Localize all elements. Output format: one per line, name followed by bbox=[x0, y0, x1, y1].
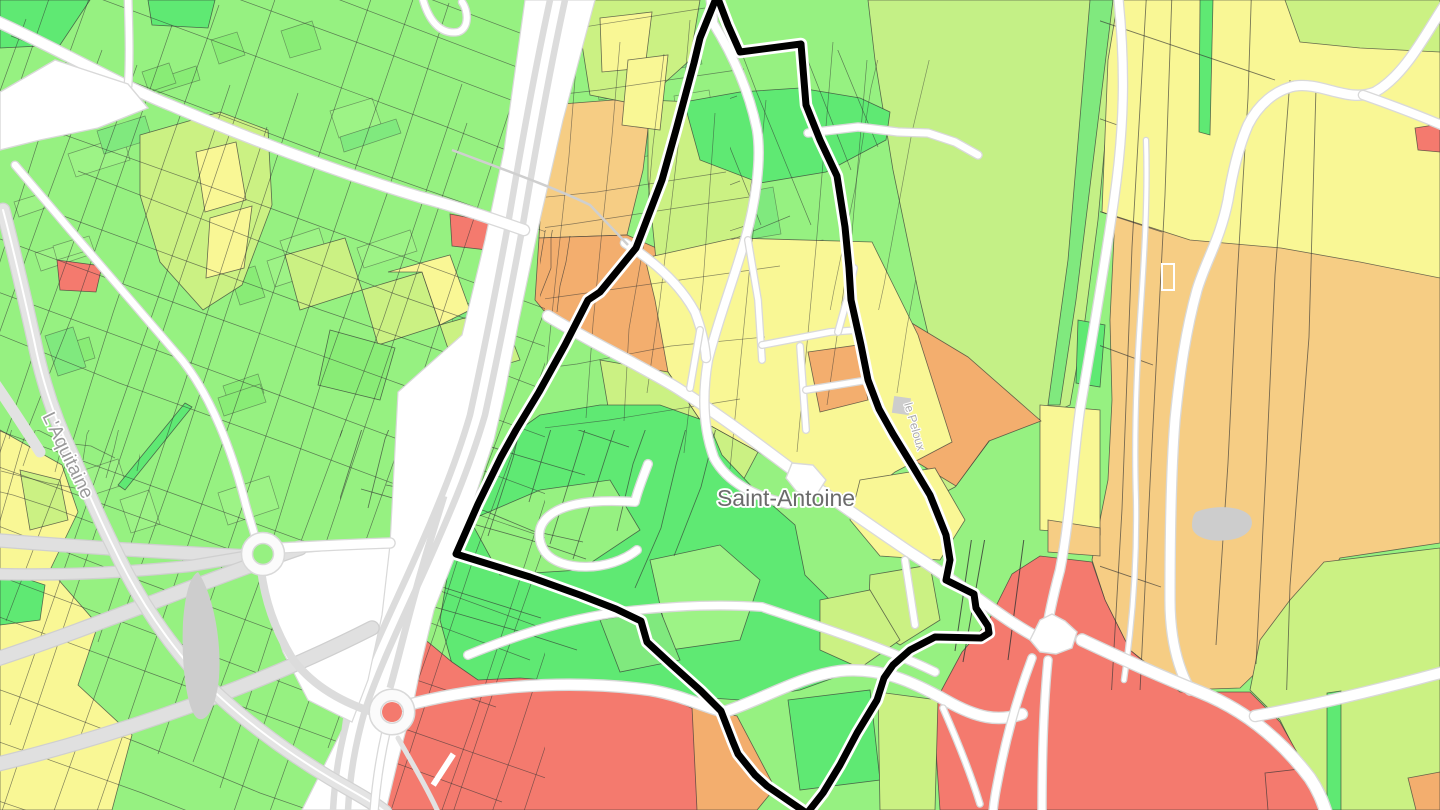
svg-text:Saint-Antoine: Saint-Antoine bbox=[717, 485, 855, 511]
